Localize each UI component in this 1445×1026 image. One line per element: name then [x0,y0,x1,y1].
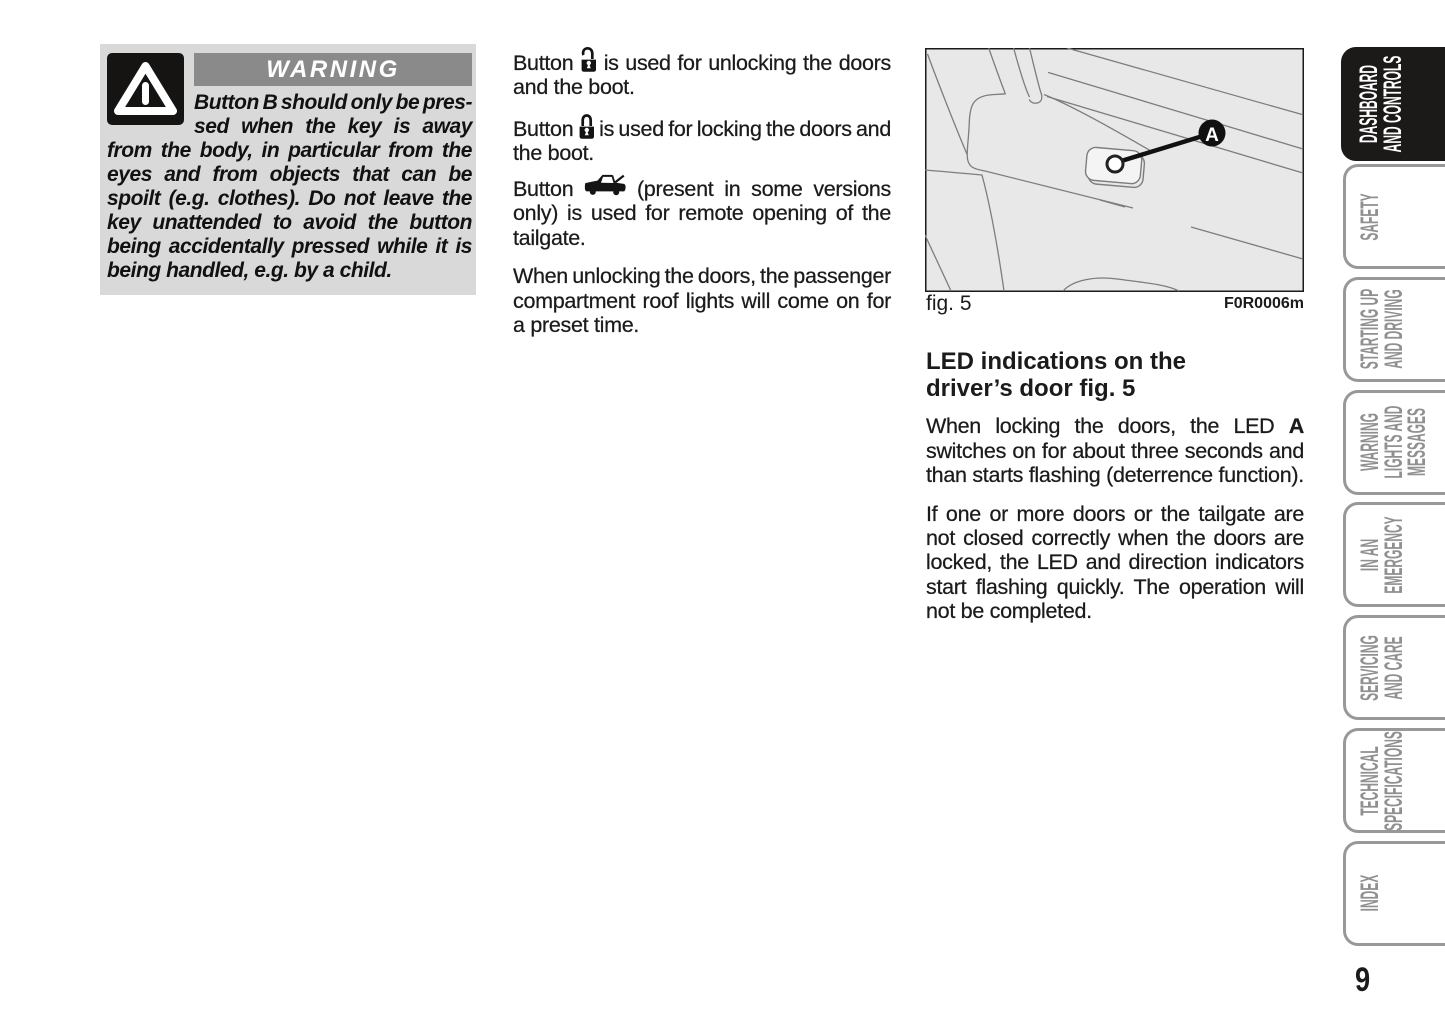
svg-text:A: A [1205,125,1219,146]
